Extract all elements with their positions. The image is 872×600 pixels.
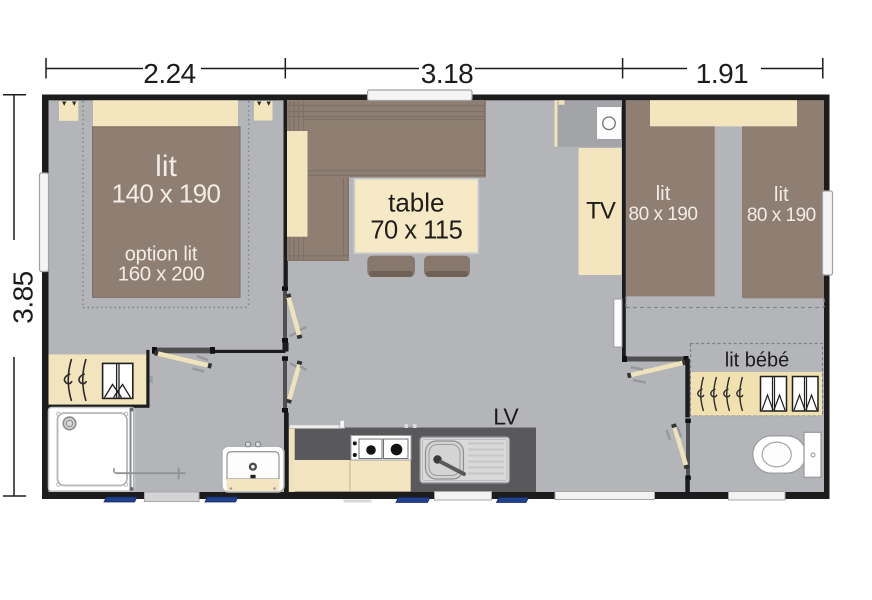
svg-text:1.91: 1.91 [696, 58, 749, 89]
svg-text:160 x 200: 160 x 200 [118, 263, 204, 286]
svg-text:lit: lit [774, 183, 789, 206]
svg-text:80 x 190: 80 x 190 [629, 204, 698, 225]
svg-text:TV: TV [586, 197, 616, 224]
svg-text:70 x 115: 70 x 115 [370, 217, 462, 245]
svg-text:table: table [388, 188, 444, 218]
svg-text:lit: lit [656, 182, 671, 205]
svg-text:2.24: 2.24 [143, 58, 196, 89]
svg-text:lit bébé: lit bébé [725, 350, 790, 372]
svg-text:3.18: 3.18 [421, 58, 474, 89]
svg-text:140 x 190: 140 x 190 [112, 179, 221, 209]
svg-text:80 x 190: 80 x 190 [747, 205, 816, 226]
svg-text:LV: LV [493, 403, 519, 429]
svg-text:3.85: 3.85 [8, 271, 39, 324]
